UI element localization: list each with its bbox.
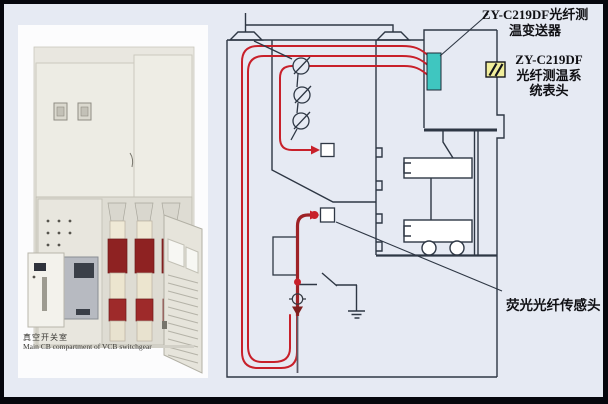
meter-head-label: ZY-C219DF 光纤测温系 统表头 bbox=[499, 52, 599, 99]
earthing-switch bbox=[299, 273, 365, 318]
truck-lower-arm bbox=[404, 220, 472, 242]
breaker-truck bbox=[404, 158, 472, 255]
truck-wheel-icon bbox=[422, 241, 436, 255]
fiber-cable-loop bbox=[242, 46, 430, 368]
fiber-connector-dot bbox=[294, 279, 301, 286]
fiber-cable-riser bbox=[298, 215, 312, 316]
page-background: 真空开关室 Main CB compartment of VCB switchg… bbox=[4, 4, 603, 397]
transmitter-label-line1: ZY-C219DF光纤测 bbox=[462, 7, 608, 23]
current-transformer bbox=[273, 237, 297, 275]
bus-support-insulator bbox=[377, 32, 409, 40]
fiber-sensor-square-1 bbox=[321, 144, 334, 157]
truck-wheel-icon bbox=[450, 241, 464, 255]
fiber-sensor-square-2 bbox=[321, 208, 335, 222]
busbar-line bbox=[246, 13, 394, 32]
fiber-cable-inner bbox=[248, 56, 430, 362]
transmitter-label: ZY-C219DF光纤测 温变送器 bbox=[462, 7, 608, 38]
cabinet-outline bbox=[227, 40, 497, 377]
transmitter-label-line2: 温变送器 bbox=[462, 23, 608, 39]
truck-vertical-bar bbox=[475, 131, 479, 255]
meter-label-line2: 光纤测温系 bbox=[499, 68, 599, 84]
fiber-connector-dot bbox=[311, 211, 319, 219]
meter-label-line3: 统表头 bbox=[499, 83, 599, 99]
fiber-transmitter bbox=[427, 53, 441, 90]
truck-upper-arm bbox=[404, 158, 472, 178]
fiber-cable-to-sensor1 bbox=[280, 66, 430, 150]
fiber-arrow-icon bbox=[311, 146, 320, 155]
shutter-notches bbox=[376, 148, 382, 251]
ground-icon bbox=[348, 311, 365, 318]
partition-wall-left bbox=[272, 40, 376, 202]
bus-support-insulator bbox=[230, 32, 262, 40]
fluorescent-sensor-label: 荧光光纤传感头 bbox=[506, 298, 608, 314]
meter-label-line1: ZY-C219DF bbox=[499, 52, 599, 68]
fiber-cable-outer bbox=[242, 46, 430, 368]
